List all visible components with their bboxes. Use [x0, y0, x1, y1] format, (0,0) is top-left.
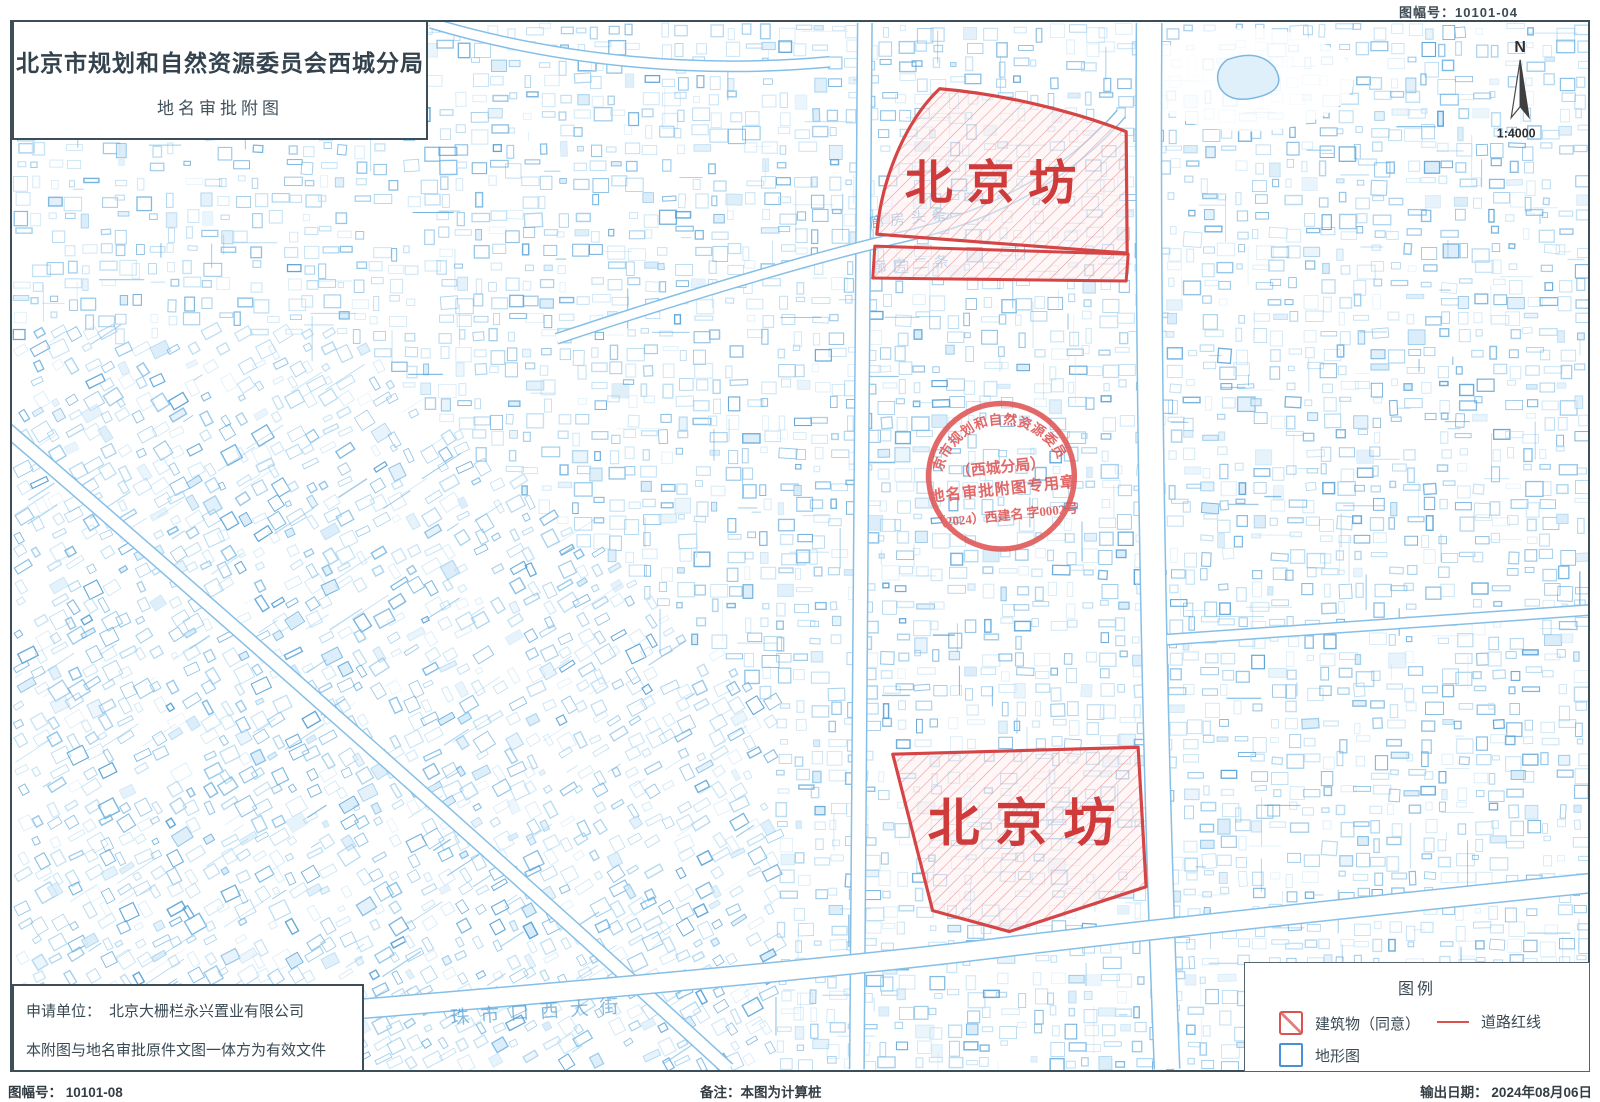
- map-frame: 廊房头条 廊房二条 珠市口西大街 北京坊 北京坊 北京市规划和自然资源委员会 （…: [10, 20, 1590, 1072]
- output-date: 输出日期： 2024年08月06日: [1420, 1081, 1592, 1101]
- scale-label: 1:4000: [1497, 127, 1536, 141]
- map-canvas: 廊房头条 廊房二条 珠市口西大街 北京坊 北京坊 北京市规划和自然资源委员会 （…: [12, 22, 1588, 1070]
- area-label-top: 北京坊: [905, 157, 1090, 210]
- building-approved-swatch-icon: [1279, 1011, 1303, 1035]
- area-label-bottom: 北京坊: [928, 795, 1131, 853]
- footer-bar: 图幅号： 10101-08 备注：本图为计算桩 输出日期： 2024年08月06…: [0, 1074, 1600, 1102]
- sheet-number-bottom: 图幅号： 10101-08: [8, 1081, 123, 1101]
- legend-title: 图例: [1245, 975, 1589, 999]
- legend-item-building: 建筑物（同意）: [1279, 1011, 1420, 1035]
- road-redline-swatch-icon: [1437, 1021, 1469, 1023]
- applicant-name: 北京大栅栏永兴置业有限公司: [109, 1003, 304, 1020]
- road: [857, 23, 865, 1069]
- legend: 图例 建筑物（同意） 道路红线 地形图: [1244, 962, 1590, 1072]
- footer-remark: 备注：本图为计算桩: [700, 1081, 822, 1101]
- legend-item-label: 道路红线: [1481, 1011, 1541, 1032]
- title-box: 北京市规划和自然资源委员会西城分局 地名审批附图: [12, 20, 428, 140]
- legend-item-label: 地形图: [1315, 1045, 1360, 1066]
- validity-note: 本附图与地名审批原件文图一体方为有效文件: [26, 1039, 362, 1060]
- north-label: N: [1514, 39, 1526, 56]
- sheet-number-top: 图幅号：10101-04: [1399, 2, 1518, 21]
- park-area: [1144, 28, 1353, 132]
- applicant-box: 申请单位：北京大栅栏永兴置业有限公司 本附图与地名审批原件文图一体方为有效文件: [12, 984, 364, 1072]
- page-subtitle: 地名审批附图: [14, 94, 426, 119]
- legend-item-road-redline: 道路红线: [1437, 1011, 1541, 1032]
- applicant-label: 申请单位：: [26, 1003, 101, 1020]
- legend-item-label: 建筑物（同意）: [1315, 1013, 1420, 1034]
- legend-item-topographic: 地形图: [1279, 1043, 1360, 1067]
- topographic-swatch-icon: [1279, 1043, 1303, 1067]
- page-title: 北京市规划和自然资源委员会西城分局: [14, 44, 426, 78]
